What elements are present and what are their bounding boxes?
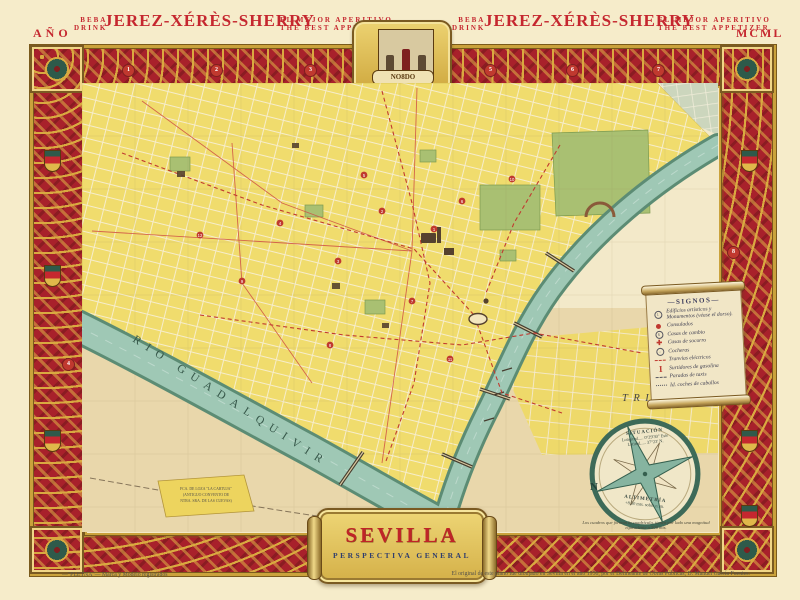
beba-line: BEBA xyxy=(452,16,485,24)
svg-text:NTRA. SRA. DE LAS CUEVAS): NTRA. SRA. DE LAS CUEVAS) xyxy=(180,499,232,503)
section-marker: 7 xyxy=(652,64,665,77)
red-dot-icon xyxy=(653,322,664,330)
section-marker: 5 xyxy=(484,64,497,77)
svg-text:12: 12 xyxy=(198,233,203,238)
corner-medallion-icon xyxy=(30,526,84,574)
torre-del-oro xyxy=(483,298,488,303)
corner-medallion-icon xyxy=(720,526,774,574)
svg-text:11: 11 xyxy=(448,357,453,362)
corner-medallion-icon xyxy=(30,45,84,93)
svg-text:(ANTIGUO CONVENTO DE: (ANTIGUO CONVENTO DE xyxy=(183,493,230,497)
bullring-oval xyxy=(469,314,487,325)
heraldic-shield-icon xyxy=(741,505,758,527)
red-cross-icon: ✚ xyxy=(654,339,665,347)
heraldic-shield-icon xyxy=(741,430,758,452)
ad-beba-drink: BEBA DRINK xyxy=(452,16,485,32)
drink-line: DRINK xyxy=(74,24,107,32)
grid-scale-note: Los cuadros que forman la cuadrícula, ti… xyxy=(576,520,716,531)
section-marker: 6 xyxy=(566,64,579,77)
svg-text:10: 10 xyxy=(510,177,515,182)
heraldic-shield-icon xyxy=(44,265,61,287)
giralda-tower xyxy=(437,227,441,243)
depot-circle-icon: – xyxy=(654,348,665,356)
section-marker: 1 xyxy=(122,64,135,77)
alcazar-block xyxy=(444,248,454,255)
trademark-note: —"PLETNA"— Marca y Modelo registrados xyxy=(62,572,168,578)
compass-rose: SITUACIÓN Longitud..... 0°29'30" Este La… xyxy=(586,415,704,533)
svg-text:FCA. DE LOZA "LA CARTUJA": FCA. DE LOZA "LA CARTUJA" xyxy=(180,487,232,491)
sevilla-map-page: AÑO BEBA DRINK JEREZ-XÉRÈS-SHERRY EL MEJ… xyxy=(0,0,800,600)
corner-medallion-icon xyxy=(720,45,774,93)
legend-scroll: —SIGNOS— 1 Edificios artísticos y Monume… xyxy=(645,285,747,406)
crest-figures xyxy=(378,29,434,75)
taxi-stop-line-icon xyxy=(655,373,666,381)
section-marker: 4 xyxy=(62,358,75,371)
roman-year-label: MCML xyxy=(736,26,783,41)
attribution-note: El original de este plano fue dibujado e… xyxy=(420,571,750,577)
cathedral-block xyxy=(421,233,436,243)
section-marker: 8 xyxy=(727,246,740,259)
year-label: AÑO xyxy=(33,26,72,41)
ad-beba-drink: BEBA DRINK xyxy=(74,16,107,32)
drink-line: DRINK xyxy=(452,24,485,32)
petrol-pump-icon: I xyxy=(655,365,666,373)
section-marker: 2 xyxy=(210,64,223,77)
monument-circle-icon: 1 xyxy=(652,311,663,319)
heraldic-shield-icon xyxy=(741,150,758,172)
cartuja-factory-label: FCA. DE LOZA "LA CARTUJA" (ANTIGUO CONVE… xyxy=(180,487,232,503)
heraldic-shield-icon xyxy=(44,430,61,452)
north-label: N xyxy=(590,481,598,493)
map-subtitle: PERSPECTIVA GENERAL xyxy=(318,551,486,560)
beba-line: BEBA xyxy=(74,16,107,24)
carriage-stop-line-icon xyxy=(656,382,667,390)
tram-line-icon xyxy=(655,356,666,364)
heraldic-shield-icon xyxy=(44,150,61,172)
map-title: SEVILLA xyxy=(318,523,486,548)
tagline-line: EL MEJOR APERITIVO xyxy=(658,16,771,24)
exchange-icon: $ xyxy=(653,331,664,339)
section-marker: 3 xyxy=(304,64,317,77)
